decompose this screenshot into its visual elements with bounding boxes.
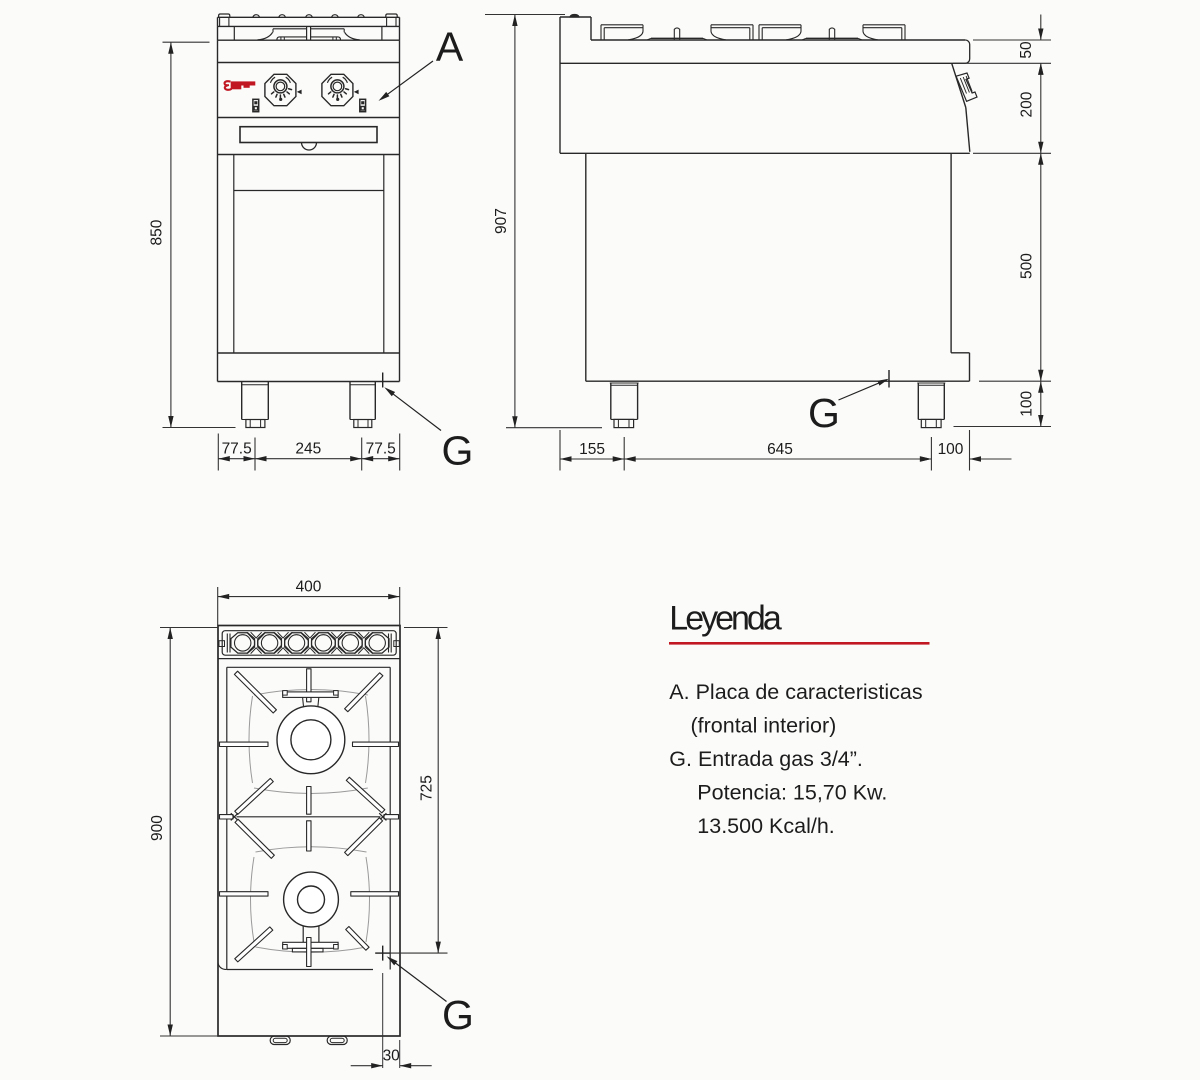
svg-text:725: 725 — [419, 775, 436, 801]
svg-text:G: G — [442, 992, 474, 1038]
svg-text:77.5: 77.5 — [366, 441, 396, 458]
svg-text:G: G — [442, 428, 474, 474]
svg-text:50: 50 — [1018, 41, 1035, 59]
svg-text:900: 900 — [149, 815, 166, 841]
svg-text:100: 100 — [938, 441, 964, 458]
svg-text:Leyenda: Leyenda — [669, 600, 782, 638]
svg-text:30: 30 — [383, 1048, 401, 1065]
svg-text:G. Entrada gas 3/4”.: G. Entrada gas 3/4”. — [669, 747, 863, 771]
svg-text:77.5: 77.5 — [222, 441, 252, 458]
svg-text:400: 400 — [296, 579, 322, 596]
svg-text:13.500 Kcal/h.: 13.500 Kcal/h. — [697, 814, 834, 838]
svg-text:200: 200 — [1019, 91, 1036, 117]
svg-text:155: 155 — [579, 441, 605, 458]
svg-text:907: 907 — [493, 208, 510, 234]
svg-text:245: 245 — [295, 441, 321, 458]
svg-text:645: 645 — [767, 441, 793, 458]
svg-text:Potencia: 15,70 Kw.: Potencia: 15,70 Kw. — [697, 781, 887, 805]
svg-text:100: 100 — [1019, 390, 1036, 416]
svg-text:500: 500 — [1019, 253, 1036, 279]
svg-text:850: 850 — [149, 219, 166, 245]
svg-text:A. Placa de caracteristicas: A. Placa de caracteristicas — [669, 680, 922, 704]
svg-text:A: A — [436, 24, 464, 70]
svg-text:(frontal interior): (frontal interior) — [691, 714, 837, 738]
svg-text:G: G — [808, 390, 840, 436]
